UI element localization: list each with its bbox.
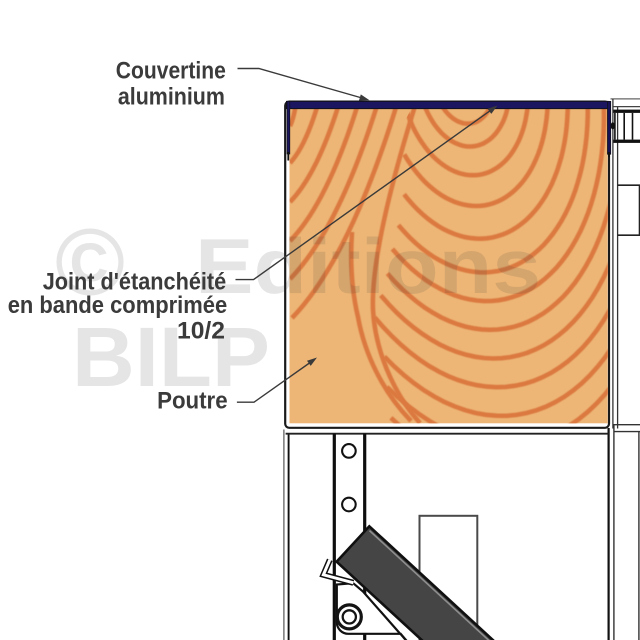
svg-text:en bande comprimée: en bande comprimée [8,292,228,319]
svg-text:aluminium: aluminium [118,83,225,110]
svg-text:Poutre: Poutre [157,388,228,415]
svg-text:10/2: 10/2 [177,318,225,345]
svg-text:Couvertine: Couvertine [116,57,226,84]
svg-text:Editions: Editions [195,222,541,310]
